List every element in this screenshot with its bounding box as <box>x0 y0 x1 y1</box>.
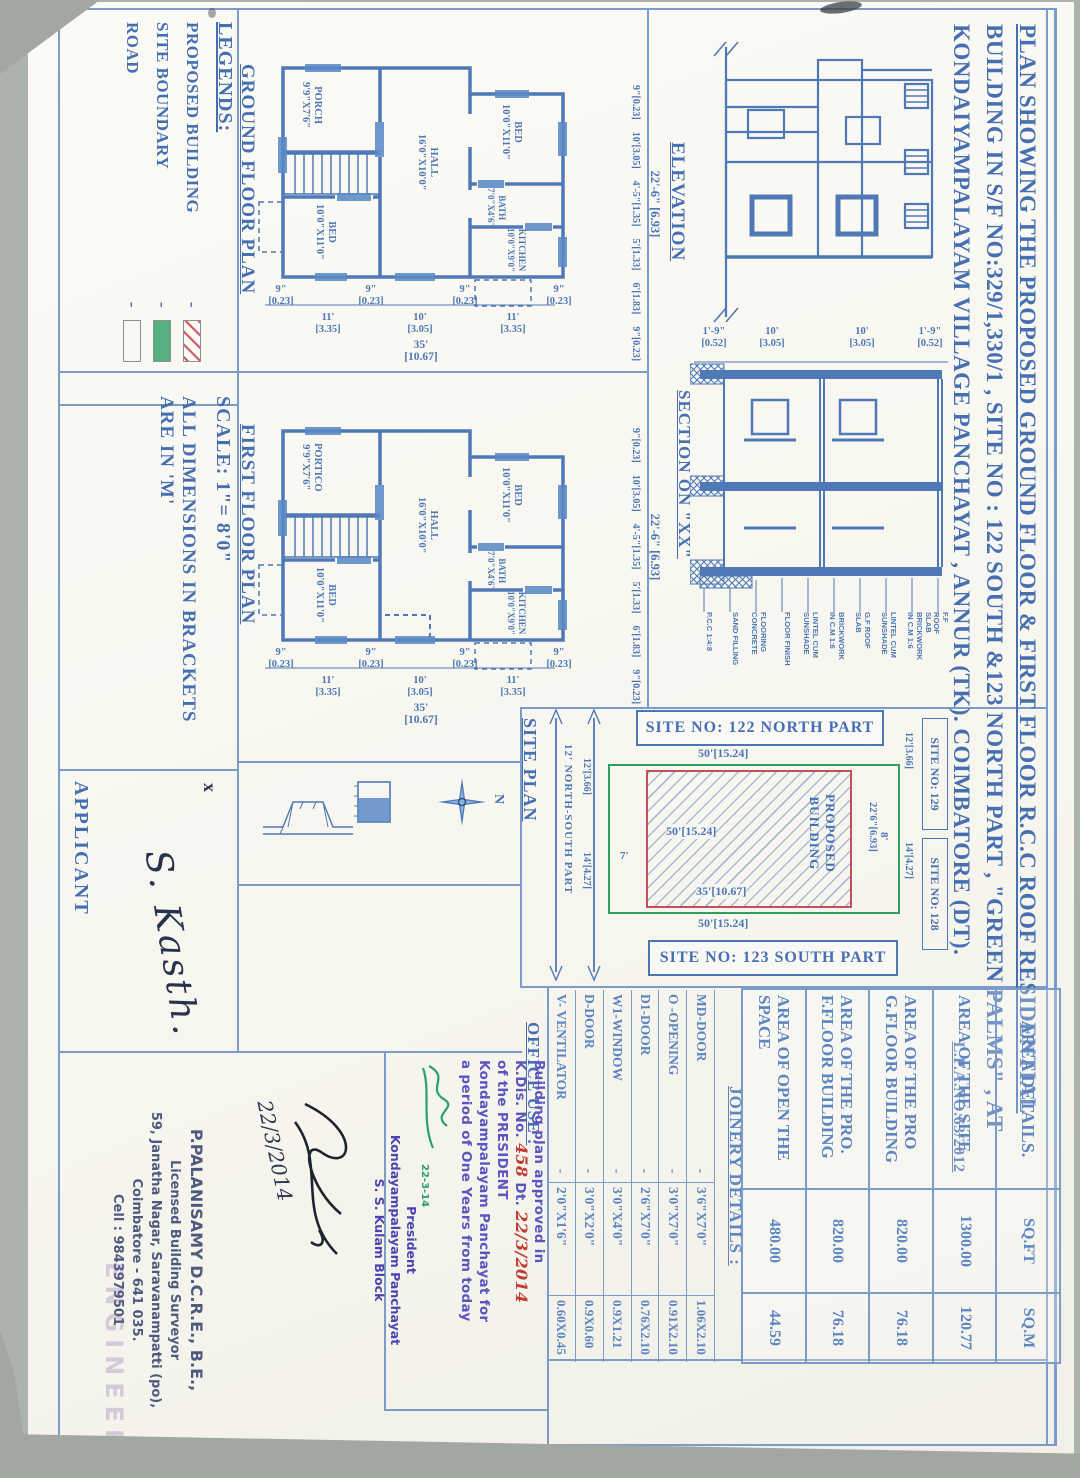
president-line: President <box>403 1060 419 1420</box>
dim-wall: 9"[0.23] <box>445 284 485 307</box>
tank-detail-sketch <box>352 776 396 830</box>
dim-span: 10'[3.05] <box>392 675 448 698</box>
section-callout: G.F ROOF SLAB <box>854 612 871 649</box>
engineer-watermark: ENGINEER <box>100 1262 128 1454</box>
road-dim: 12'[3.66] <box>581 758 592 795</box>
legends-title: LEGENDS: <box>213 22 236 404</box>
road-dim: 14'[4.27] <box>581 852 592 889</box>
room-label-bath: BATH7'0"X4'6" <box>486 551 507 591</box>
table-row: D1-DOOR- 2'6"X7'0"0.76X2.10 <box>632 990 660 1362</box>
stamp-line: K.Dis. No. 458 Dt. 22/3/2014 <box>511 1060 530 1420</box>
area-header-label: AREA DETAILS. <box>1018 1021 1038 1158</box>
stamp-line: Building plan approved in <box>530 1060 548 1420</box>
area-details-table: AREA DETAILS. SQ.FT SQ.M AREA OF THE SIT… <box>741 988 1061 1364</box>
section-callout: FLOOR FINISH <box>782 612 791 666</box>
dim-inner-width: 50'[15.24] <box>666 824 716 839</box>
room-label-bed: BED10'0"X11'0" <box>313 204 337 260</box>
road-swatch <box>123 320 141 362</box>
road-lines <box>548 702 604 987</box>
dim-span: 11'[3.35] <box>485 675 541 698</box>
room-label-kitchen: KITCHEN10'0"X9'0" <box>506 591 527 635</box>
kdis-date-handwritten: 22/3/2014 <box>512 1211 531 1303</box>
surveyor-signature <box>289 1092 365 1262</box>
side-dim: 14'[4.27] <box>903 842 914 879</box>
applicant-x-mark: x <box>199 783 220 792</box>
joinery-title: JOINERY DETAILS : <box>715 990 745 1362</box>
dim-span: 11'[3.35] <box>300 675 356 698</box>
north-letter: N <box>490 794 506 804</box>
table-row: AREA OF THE SITE 1300.00 120.77 <box>934 990 998 1362</box>
site-plan-drawing: 12' NORTH-SOUTH PART 12'[3.66] 14'[4.27]… <box>548 702 954 987</box>
side-dim: 12'[3.66] <box>903 732 914 769</box>
room-label-hall: HALL16'0"X10'0" <box>415 134 439 191</box>
table-row: W1-WINDOW- 3'0"X4'0"0.9X1.21 <box>604 990 632 1362</box>
table-row: MD-DOOR- 3'6"X7'0"1.06X2.10 <box>687 990 715 1362</box>
room-label-hall: HALL16'0"X10'0" <box>415 497 439 554</box>
room-label-bath: BATH7'0"X4'6" <box>486 188 507 228</box>
legends-block: LEGENDS: PROPOSED BUILDING - SITE BOUNDA… <box>64 22 236 404</box>
section-graphic <box>690 352 955 652</box>
dim-total: 35'[10.67] <box>381 703 461 726</box>
divider-compass-bottom <box>238 884 522 886</box>
room-label-porch: PORCH9'9"X7'6" <box>299 82 323 128</box>
dim-wall: 9"[0.23] <box>445 647 485 670</box>
president-line: S. S. Kulam Block <box>371 1060 387 1420</box>
building-label: PROPOSED BUILDING <box>806 794 838 873</box>
room-label-bed: BED10'0"X11'0" <box>499 104 523 160</box>
legend-item-site-boundary: SITE BOUNDARY - <box>147 22 177 404</box>
table-row: AREA OF OPEN THE SPACE 480.00 44.59 <box>743 990 807 1362</box>
dim-section: 10'[3.05] <box>748 326 796 349</box>
legend-item-road: ROAD - <box>117 22 147 404</box>
dim-section: 1'-9"[0.52] <box>906 326 954 349</box>
section-callout: BRICKWORK IN C.M 1:6 <box>828 612 845 660</box>
dims-note-2: ARE IN 'M' <box>155 396 177 768</box>
dim-inner-length: 35'[10.67] <box>696 884 746 899</box>
scale-block: SCALE: 1"= 8'0" ALL DIMENSIONS IN BRACKE… <box>155 396 234 768</box>
elevation-drawing <box>700 22 950 337</box>
dim-section: 1'-9"[0.52] <box>690 326 738 349</box>
stamp-line: Kondayampalayam Panchayat for <box>475 1060 493 1420</box>
caption-elevation: ELEVATION <box>666 142 688 261</box>
divider-scale <box>58 769 238 771</box>
area-header-sqft: SQ.FT <box>1019 1218 1037 1264</box>
surveyor-line: Licensed Building Surveyor <box>165 1085 184 1435</box>
dim-wall: 9"[0.23] <box>261 284 301 307</box>
dim-wall: 9"[0.23] <box>351 647 391 670</box>
dim-bottom: 50'[15.24] <box>698 916 748 931</box>
gf-side-dims: 22'-6" [6.93] 9"[0.23]10'[3.05] 4'-5"[1.… <box>630 85 662 323</box>
scanned-plan-page: PLAN SHOWING THE PROPOSED GROUND FLOOR &… <box>0 0 1080 1478</box>
joinery-table: JOINERY DETAILS : MD-DOOR- 3'6"X7'0"1.06… <box>548 990 745 1362</box>
scale-note: SCALE: 1"= 8'0" <box>211 396 234 768</box>
elevation-graphic <box>700 22 950 337</box>
president-sig-date: 22-3-14 <box>419 1164 430 1207</box>
section-callout: SAND FILLING <box>730 612 739 665</box>
table-row: AREA OF THE PRO G.FLOOR BUILDING 820.00 … <box>870 990 934 1362</box>
surveyor-line: Coimbatore - 641 035. <box>127 1085 146 1435</box>
room-label-kitchen: KITCHEN10'0"X9'0" <box>506 228 527 272</box>
area-header-sqm: SQ.M <box>1019 1308 1037 1348</box>
dim-inner-height: 22'6"[6.93] <box>867 802 878 852</box>
applicant-signature: S. Kasth. <box>136 847 206 1040</box>
banner-site-129: SITE NO: 129 <box>922 718 948 830</box>
president-signature <box>419 1060 455 1156</box>
dim-total: 35'[10.67] <box>381 340 461 363</box>
president-line: Kondayampalayam Panchayat <box>387 1060 403 1420</box>
site-boundary-swatch <box>153 320 171 362</box>
proposed-building-swatch <box>183 320 201 362</box>
table-row: O -OPENING- 3'0"X7'0"0.91X2.10 <box>659 990 687 1362</box>
section-callout: BRICKWORK IN C.M 1:6 <box>906 612 923 660</box>
room-label-portico: PORTICO9'9"X7'6" <box>299 443 323 492</box>
dim-section: 10'[3.05] <box>838 326 886 349</box>
ink-smudge <box>208 8 216 18</box>
surveyor-line: 59, Janatha Nagar, Saravanampatti (po), <box>146 1085 165 1435</box>
compass-icon <box>438 778 486 826</box>
table-row: AREA OF THE PRO. F.FLOOR BUILDING 820.00… <box>807 990 871 1362</box>
ground-floor-plan-drawing: PORCH9'9"X7'6" HALL16'0"X10'0" BED10'0"X… <box>245 22 575 372</box>
kdis-number-handwritten: 458 <box>512 1143 531 1177</box>
dims-note-1: ALL DIMENSIONS IN BRACKETS <box>177 396 199 768</box>
dim-wall: 9"[0.23] <box>539 284 579 307</box>
legend-item-proposed-building: PROPOSED BUILDING - <box>177 22 207 404</box>
banner-site-122: SITE NO: 122 NORTH PART <box>636 710 884 746</box>
dim-span: 11'[3.35] <box>300 312 356 335</box>
section-drawing: 1'-9"[0.52] 10'[3.05] 10'[3.05] 1'-9"[0.… <box>690 322 955 667</box>
gap-left: 7' <box>620 850 629 862</box>
room-label-bed: BED10'0"X11'0" <box>499 467 523 523</box>
section-callout: F.F ROOF SLAB <box>923 612 949 634</box>
table-row: D-DOOR- 3'0"X2'0"0.9X0.60 <box>576 990 604 1362</box>
section-callout: LINTEL CUM SUNSHADE <box>880 612 897 658</box>
first-floor-plan-drawing: PORTICO9'9"X7'6" HALL16'0"X10'0" BED10'0… <box>245 385 575 735</box>
area-header-row: AREA DETAILS. SQ.FT SQ.M <box>997 990 1059 1362</box>
road-label: 12' NORTH-SOUTH PART <box>562 744 574 894</box>
room-label-bed: BED10'0"X11'0" <box>313 567 337 623</box>
frame-left <box>58 8 60 1446</box>
dim-wall: 9"[0.23] <box>539 647 579 670</box>
dim-span: 10'[3.05] <box>392 312 448 335</box>
banner-site-128: SITE NO: 128 <box>922 838 948 950</box>
road-section-sketch <box>258 772 358 852</box>
section-callout: LINTEL CUM SUNSHADE <box>802 612 819 658</box>
divider-compass-top <box>238 761 522 763</box>
dim-span: 11'[3.35] <box>485 312 541 335</box>
gap-right: 8' <box>878 832 890 841</box>
stamp-line: a period of One Years from today <box>457 1060 475 1420</box>
approval-stamp: Building plan approved in K.Dis. No. 458… <box>371 1060 548 1420</box>
dim-top: 50'[15.24] <box>698 746 748 761</box>
surveyor-name: P.PALANISAMY D.C.R.E., B.E., <box>184 1085 208 1435</box>
dim-wall: 9"[0.23] <box>351 284 391 307</box>
table-row: V- VENTILATOR- 2'0"X1'6"0.60X0.45 <box>548 990 576 1362</box>
stamp-line: of the PRESIDENT <box>493 1060 511 1420</box>
section-callout: FLOORING CONCRETE <box>750 612 767 655</box>
dim-wall: 9"[0.23] <box>261 647 301 670</box>
ff-side-dims: 22'-6" [6.93] 9"[0.23]10'[3.05] 4'-5"[1.… <box>630 428 662 666</box>
section-callout: P.C.C 1:4:8 <box>704 612 713 651</box>
applicant-label: APPLICANT <box>69 781 92 916</box>
banner-site-123: SITE NO: 123 SOUTH PART <box>648 940 898 976</box>
